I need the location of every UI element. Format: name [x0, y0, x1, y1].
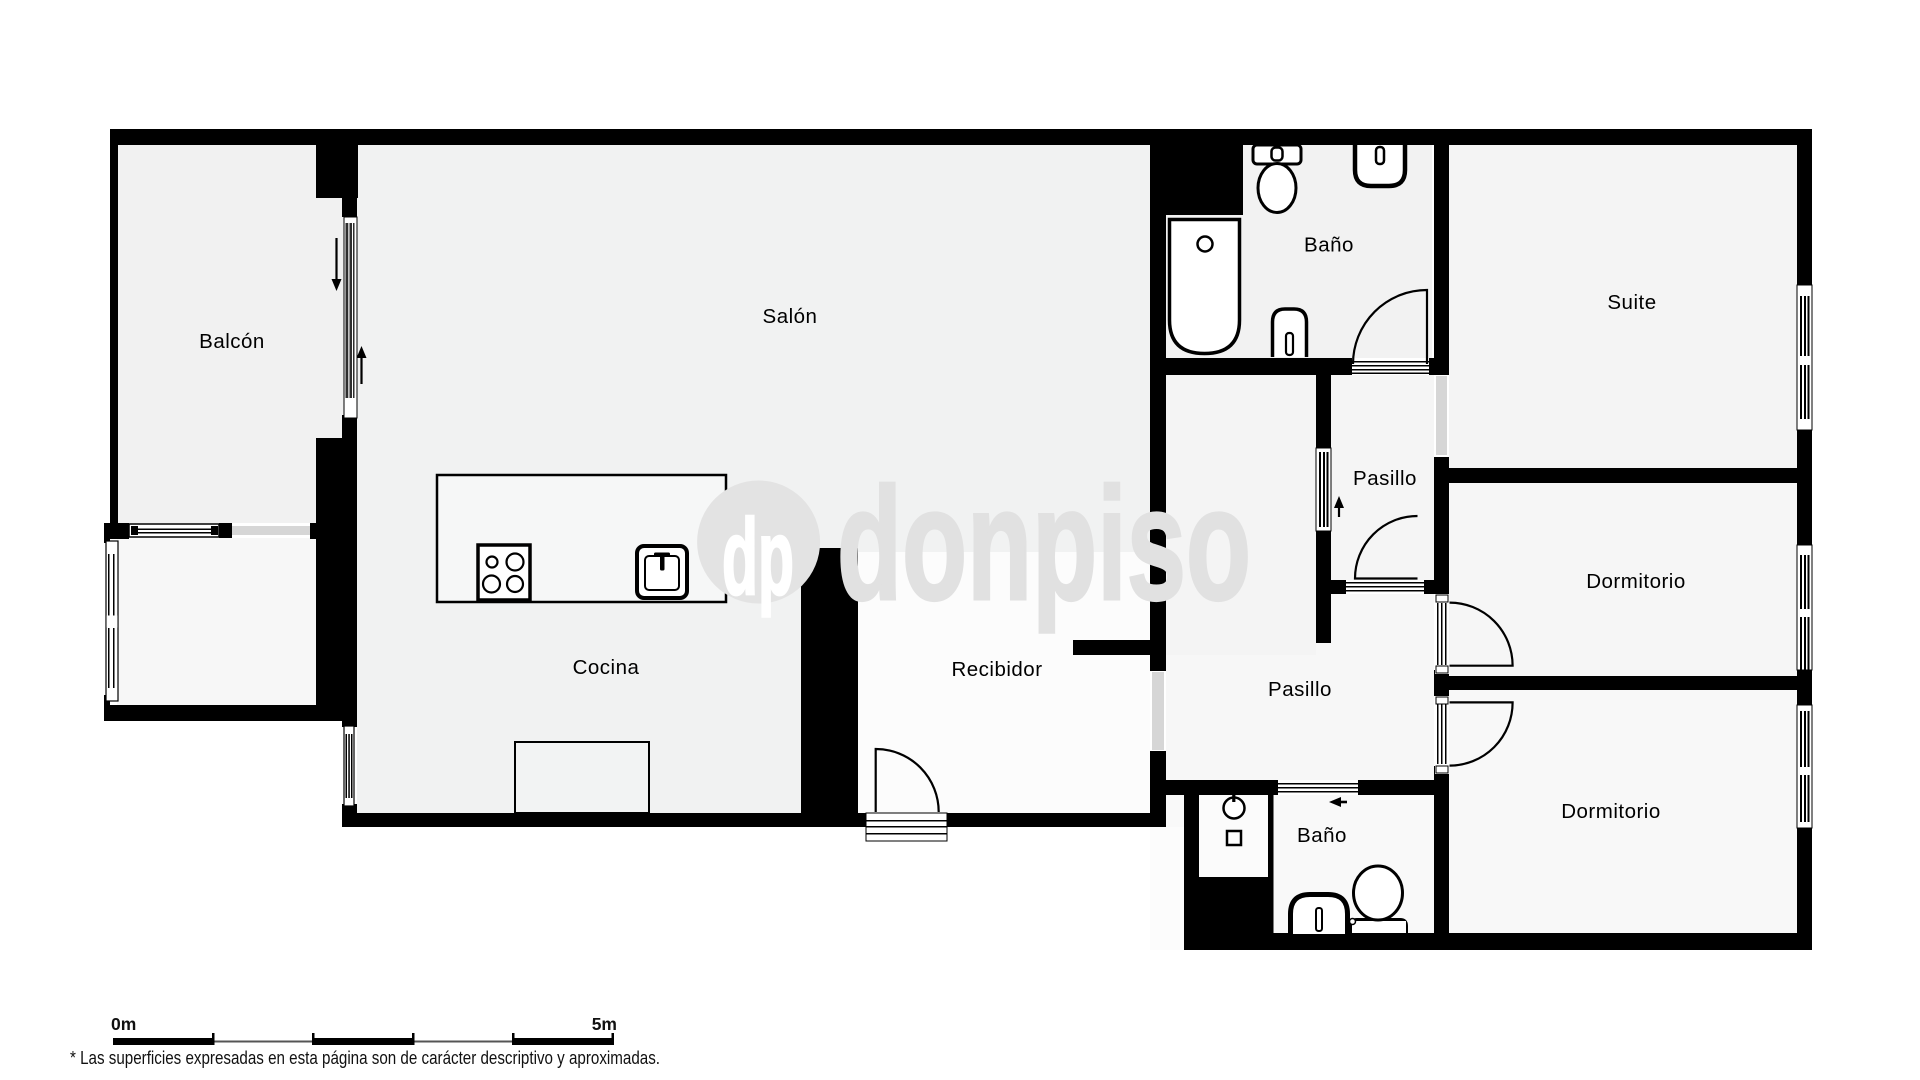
- svg-text:Dormitorio: Dormitorio: [1586, 570, 1686, 593]
- svg-text:Dormitorio: Dormitorio: [1561, 800, 1661, 823]
- svg-text:Balcón: Balcón: [199, 330, 265, 353]
- svg-text:donpiso: donpiso: [837, 454, 1251, 633]
- svg-text:Cocina: Cocina: [573, 656, 640, 679]
- svg-text:Pasillo: Pasillo: [1268, 678, 1332, 701]
- svg-text:0m: 0m: [111, 1014, 136, 1034]
- svg-text:Salón: Salón: [763, 305, 818, 328]
- svg-text:Suite: Suite: [1607, 291, 1656, 314]
- svg-text:dp: dp: [722, 496, 794, 617]
- svg-text:Baño: Baño: [1297, 824, 1347, 847]
- svg-text:* Las superficies expresadas e: * Las superficies expresadas en esta pág…: [70, 1047, 660, 1068]
- svg-text:5m: 5m: [592, 1014, 617, 1034]
- svg-text:Recibidor: Recibidor: [951, 658, 1042, 681]
- svg-text:Baño: Baño: [1304, 234, 1354, 257]
- svg-text:Pasillo: Pasillo: [1353, 467, 1417, 490]
